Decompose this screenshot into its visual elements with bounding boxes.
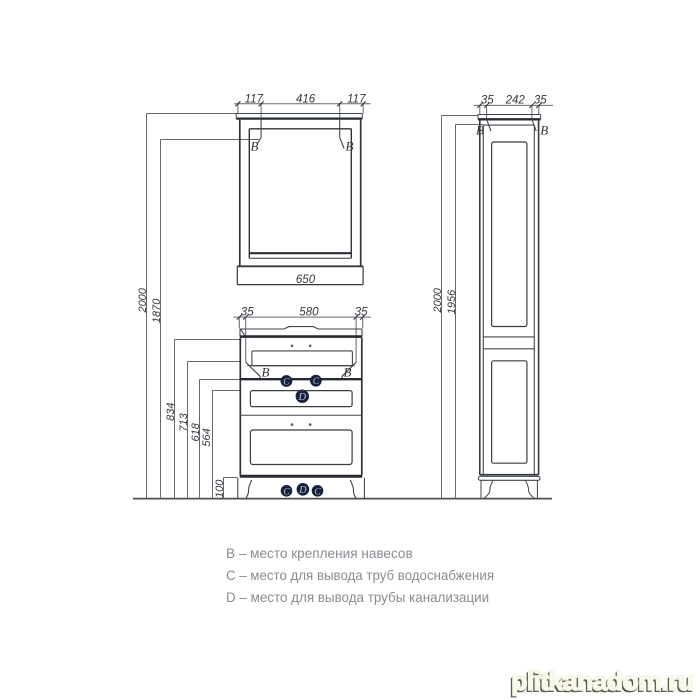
svg-text:D: D	[298, 485, 307, 496]
svg-text:B: B	[346, 139, 354, 154]
svg-text:35: 35	[481, 95, 494, 107]
svg-text:35: 35	[241, 306, 254, 318]
svg-text:100: 100	[214, 479, 226, 498]
svg-text:1870: 1870	[151, 298, 163, 323]
svg-text:B: B	[251, 139, 259, 154]
svg-text:2000: 2000	[432, 287, 444, 313]
svg-text:713: 713	[178, 412, 190, 431]
svg-text:416: 416	[296, 93, 316, 105]
svg-text:B: B	[344, 365, 352, 380]
svg-text:35: 35	[534, 95, 547, 107]
svg-text:B: B	[262, 365, 270, 380]
svg-text:C: C	[283, 378, 290, 388]
svg-text:D: D	[298, 392, 307, 403]
svg-text:C: C	[313, 377, 320, 387]
svg-text:580: 580	[299, 306, 319, 318]
svg-text:564: 564	[201, 428, 213, 446]
svg-text:2000: 2000	[137, 287, 149, 313]
svg-text:117: 117	[347, 93, 366, 105]
svg-text:834: 834	[165, 403, 177, 421]
svg-text:650: 650	[296, 274, 316, 286]
svg-text:1956: 1956	[446, 289, 458, 314]
svg-text:C: C	[283, 487, 290, 497]
svg-text:35: 35	[355, 306, 368, 318]
svg-text:B: B	[540, 123, 548, 138]
svg-text:C: C	[314, 487, 321, 497]
svg-text:117: 117	[245, 93, 264, 105]
svg-text:242: 242	[505, 95, 526, 107]
